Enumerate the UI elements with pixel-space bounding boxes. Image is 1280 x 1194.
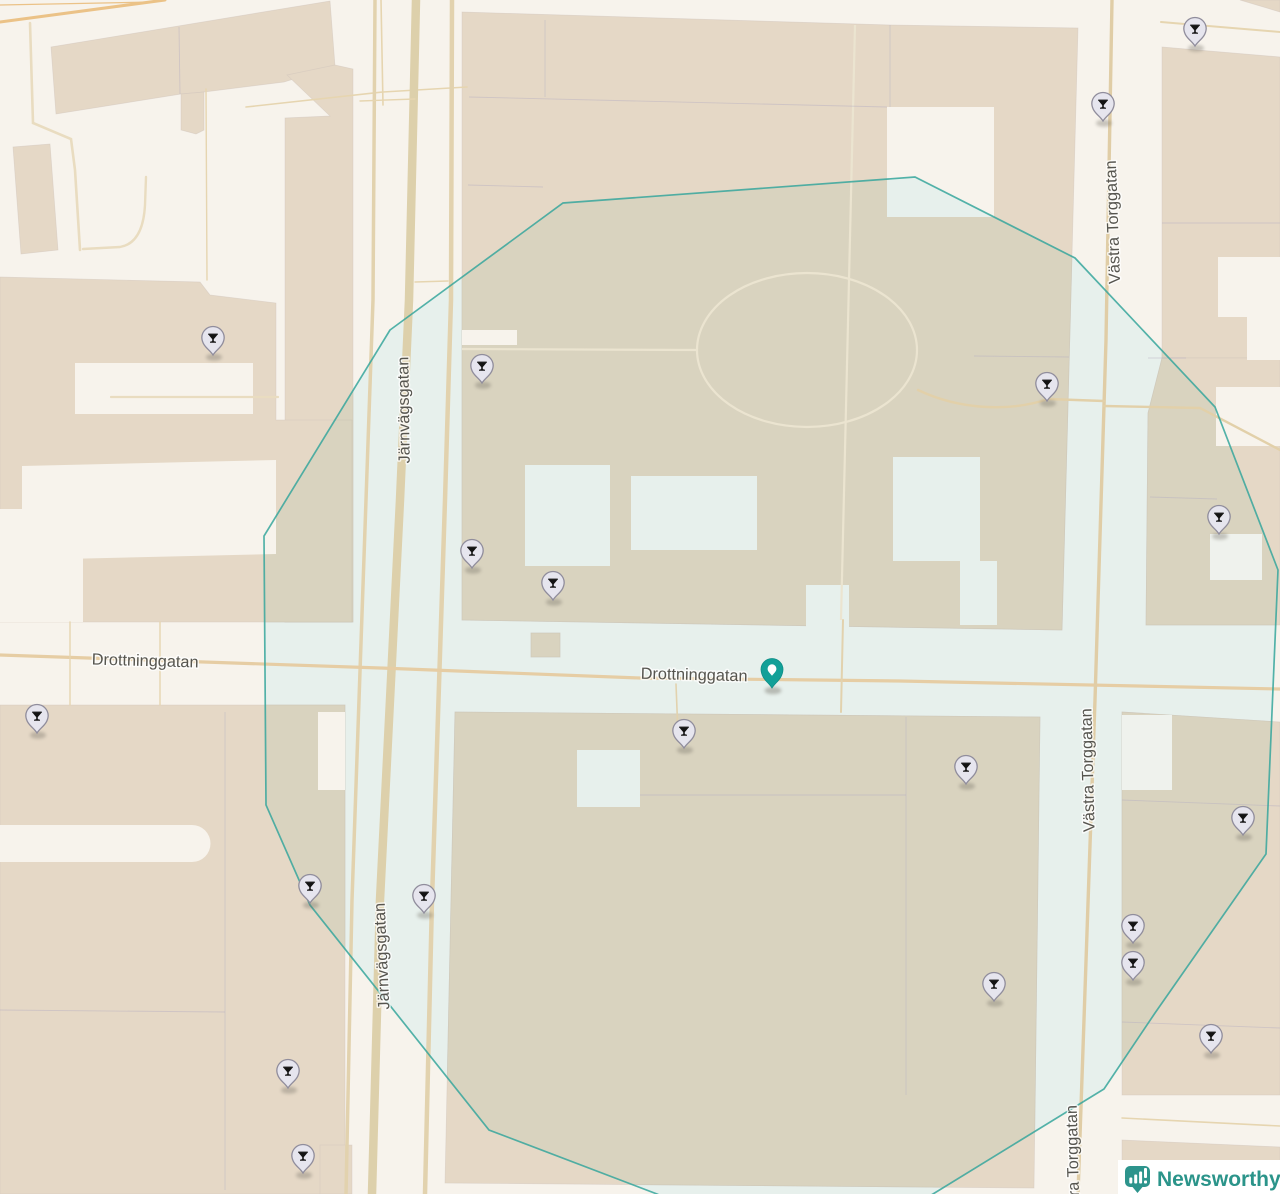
svg-text:Järnvägsgatan: Järnvägsgatan xyxy=(394,357,413,464)
svg-text:ra Torggatan: ra Torggatan xyxy=(1063,1105,1083,1194)
svg-text:Newsworthy: Newsworthy xyxy=(1157,1168,1280,1191)
svg-text:Drottninggatan: Drottninggatan xyxy=(92,651,199,672)
svg-text:Västra Torggatan: Västra Torggatan xyxy=(1077,708,1098,832)
svg-text:Drottninggatan: Drottninggatan xyxy=(641,665,748,686)
